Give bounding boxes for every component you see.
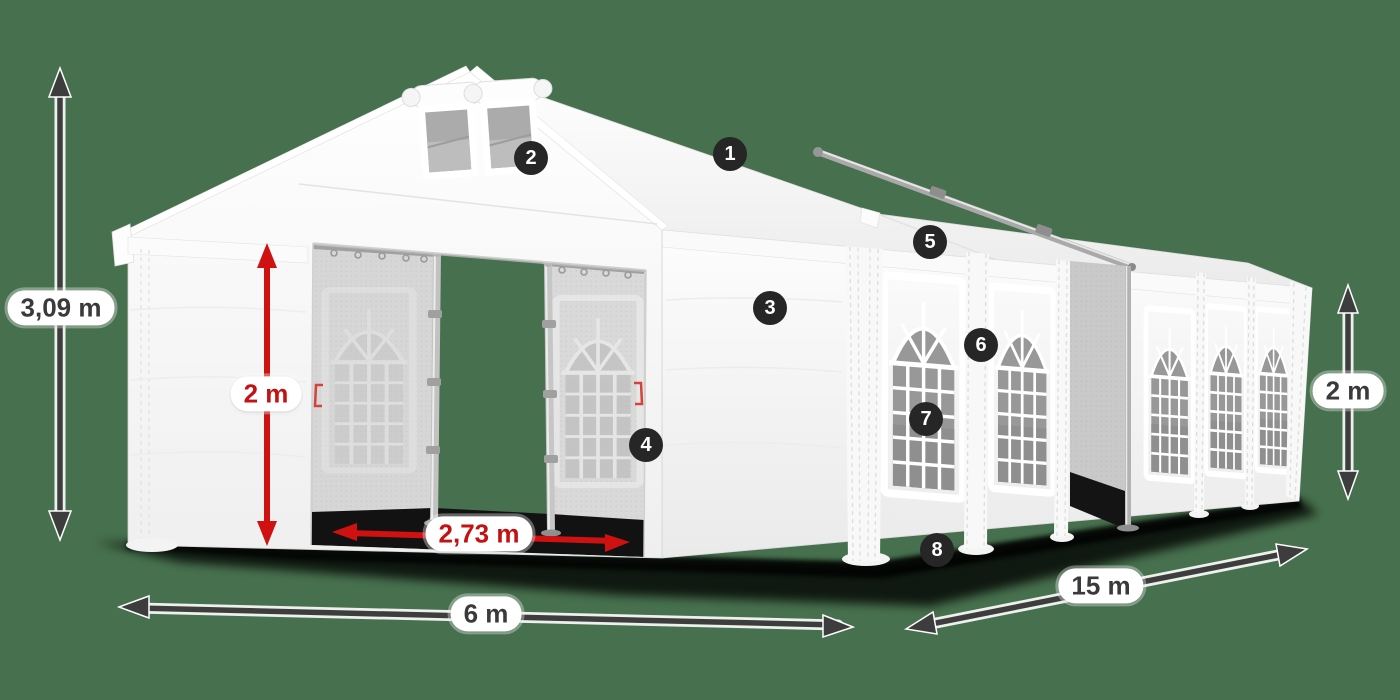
dimension-label-door-height: 2 m	[231, 376, 302, 411]
dimension-label-wall-height: 2 m	[1313, 373, 1384, 408]
callout-6-number: 6	[975, 334, 986, 357]
dimension-label-door-width: 2,73 m	[426, 516, 533, 551]
door-width-value: 2,73 m	[439, 518, 520, 548]
wall-height-value: 2 m	[1326, 375, 1371, 405]
callout-5-number: 5	[924, 231, 935, 254]
total-height-value: 3,09 m	[21, 292, 102, 322]
callout-8-number: 8	[931, 539, 942, 562]
callout-3[interactable]: 3	[753, 291, 787, 325]
callout-7-number: 7	[920, 408, 931, 431]
callout-1-number: 1	[724, 143, 735, 166]
dimension-label-front-width: 6 m	[451, 596, 522, 631]
callout-1[interactable]: 1	[713, 137, 747, 171]
front-width-value: 6 m	[464, 598, 509, 628]
callout-6[interactable]: 6	[964, 328, 998, 362]
callout-2[interactable]: 2	[514, 141, 548, 175]
callout-4-number: 4	[640, 434, 651, 457]
side-entrance-opening	[1070, 261, 1139, 532]
door-height-value: 2 m	[244, 378, 289, 408]
callout-8[interactable]: 8	[920, 533, 954, 567]
tent-dimension-diagram: 3,09 m 2 m 2,73 m 6 m 15 m 2 m 1 2 3 4 5…	[0, 0, 1400, 700]
dimension-label-side-length: 15 m	[1058, 568, 1143, 603]
side-length-value: 15 m	[1071, 570, 1130, 600]
tent-illustration	[0, 0, 1400, 700]
callout-7[interactable]: 7	[909, 402, 943, 436]
callout-2-number: 2	[525, 147, 536, 170]
callout-4[interactable]: 4	[629, 428, 663, 462]
dimension-label-total-height: 3,09 m	[8, 290, 115, 325]
front-door-opening	[311, 235, 646, 557]
callout-3-number: 3	[764, 297, 775, 320]
callout-5[interactable]: 5	[913, 225, 947, 259]
